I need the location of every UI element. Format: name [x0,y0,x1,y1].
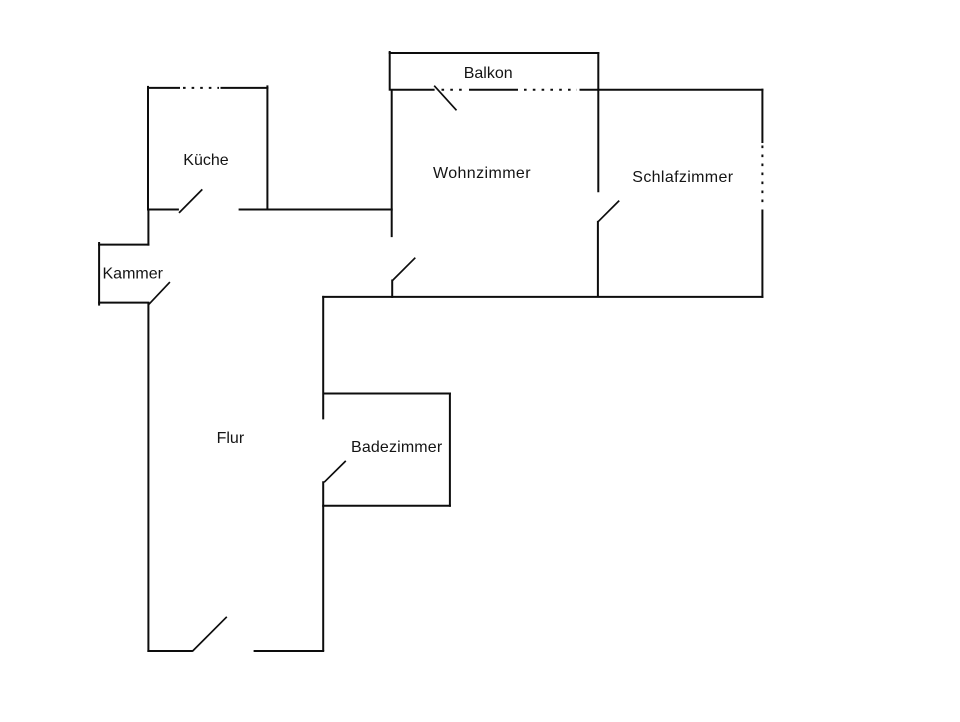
svg-text:Balkon: Balkon [464,65,513,82]
svg-text:Kammer: Kammer [103,265,164,282]
svg-text:Flur: Flur [217,430,245,447]
svg-text:Schlafzimmer: Schlafzimmer [632,169,733,186]
svg-text:Küche: Küche [183,152,228,169]
svg-text:Wohnzimmer: Wohnzimmer [433,165,531,182]
svg-text:Badezimmer: Badezimmer [351,439,443,456]
